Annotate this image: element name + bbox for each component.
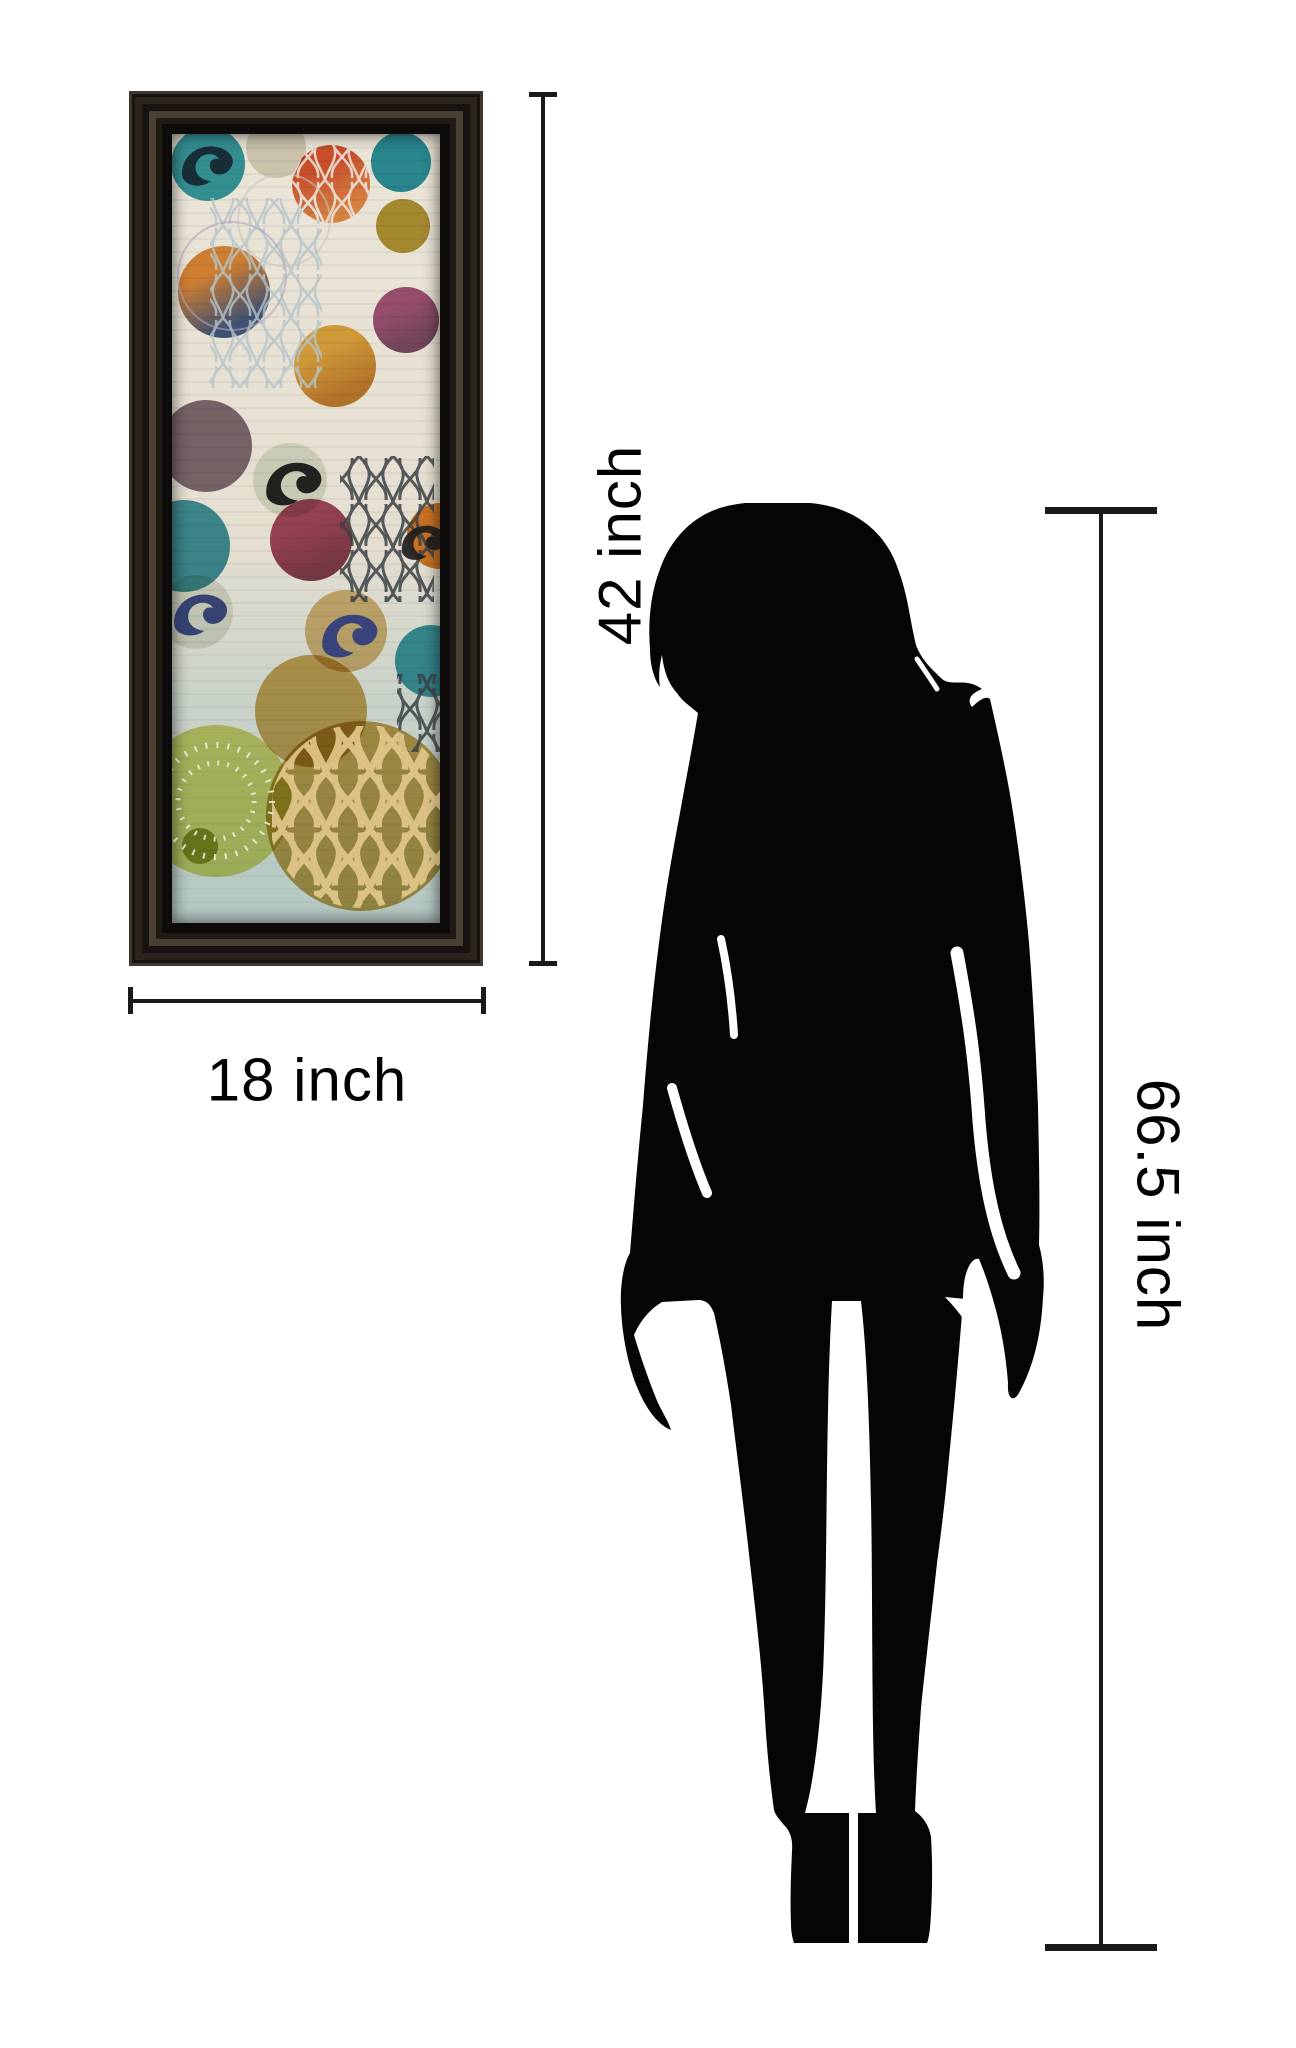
person-height-label: 66.5 inch <box>1124 1079 1193 1332</box>
trellis-pattern-light <box>210 198 322 388</box>
lace-pattern-green-circle <box>172 745 272 857</box>
woman-silhouette <box>620 503 1045 1949</box>
dimension-line-66 <box>1099 512 1103 1946</box>
artwork <box>172 134 440 923</box>
artwork-pattern-overlay <box>172 134 440 923</box>
damask-flourish <box>182 146 233 185</box>
dimension-tick <box>1045 1944 1157 1951</box>
damask-flourish <box>174 595 227 636</box>
dimension-line-18 <box>130 999 484 1003</box>
dimension-tick <box>128 987 133 1014</box>
trellis-pattern-gold-circle <box>272 726 440 916</box>
dimension-tick <box>529 961 557 966</box>
trellis-pattern-dark <box>340 456 440 752</box>
damask-flourish <box>266 463 321 506</box>
picture-frame <box>129 91 483 966</box>
dimension-tick <box>481 987 486 1014</box>
dimension-tick <box>529 92 557 97</box>
damask-flourish <box>322 615 377 658</box>
artwork-width-label: 18 inch <box>207 1046 407 1115</box>
dimension-line-42 <box>541 95 545 963</box>
dimension-tick <box>1045 507 1157 514</box>
